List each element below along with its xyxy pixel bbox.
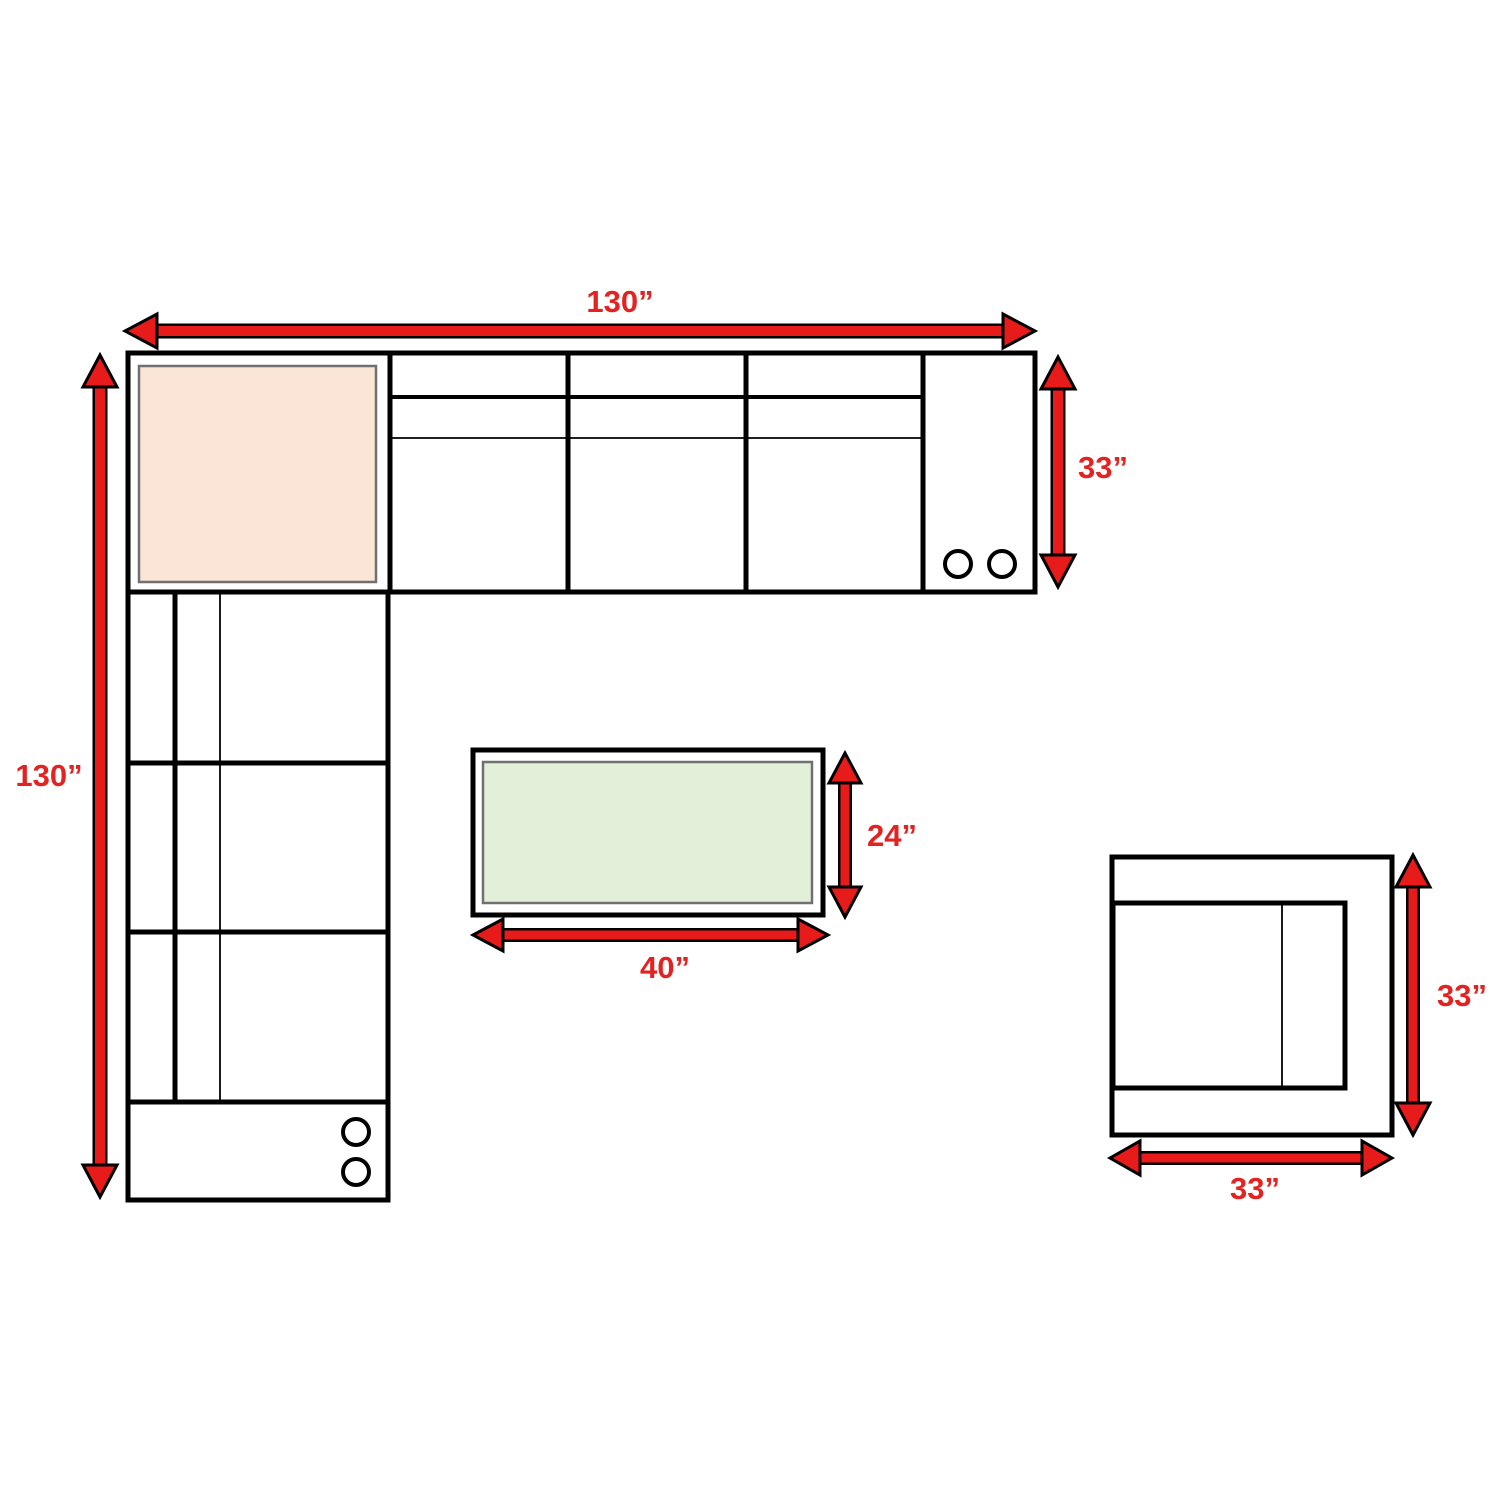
dimension-label-sectional-depth: 33” — [1078, 450, 1128, 485]
dimension-label-chair-depth: 33” — [1437, 978, 1487, 1013]
dimension-arrow-sectional-depth — [1041, 357, 1075, 587]
dimension-arrow-table-width — [473, 919, 828, 951]
diagram-svg: 130” 33” 130” 24” 40” 33” 33” — [0, 0, 1500, 1500]
chair-seat — [1113, 903, 1345, 1088]
corner-ottoman — [139, 366, 376, 582]
sectional-left-outline — [128, 592, 388, 1200]
dimension-label-table-depth: 24” — [867, 818, 917, 853]
dimension-label-sectional-width: 130” — [586, 284, 653, 319]
dimension-arrow-sectional-width — [125, 314, 1035, 348]
chair — [1112, 857, 1392, 1135]
dimension-arrow-chair-width — [1110, 1141, 1392, 1175]
sectional-left-column — [128, 592, 388, 1200]
dimension-label-table-width: 40” — [640, 950, 690, 985]
sectional-top-row — [128, 353, 1035, 592]
furniture-dimension-diagram: 130” 33” 130” 24” 40” 33” 33” — [0, 0, 1500, 1500]
dimension-arrow-chair-depth — [1396, 855, 1430, 1135]
dimension-label-sectional-length: 130” — [15, 758, 82, 793]
coffee-table — [473, 750, 823, 915]
dimension-arrow-sectional-length — [83, 355, 117, 1197]
cupholder-icon — [989, 551, 1015, 577]
dimension-label-chair-width: 33” — [1230, 1171, 1280, 1206]
coffee-table-top — [483, 762, 812, 903]
cupholder-icon — [343, 1119, 369, 1145]
cupholder-icon — [343, 1159, 369, 1185]
dimension-arrow-table-depth — [829, 753, 861, 917]
cupholder-icon — [945, 551, 971, 577]
